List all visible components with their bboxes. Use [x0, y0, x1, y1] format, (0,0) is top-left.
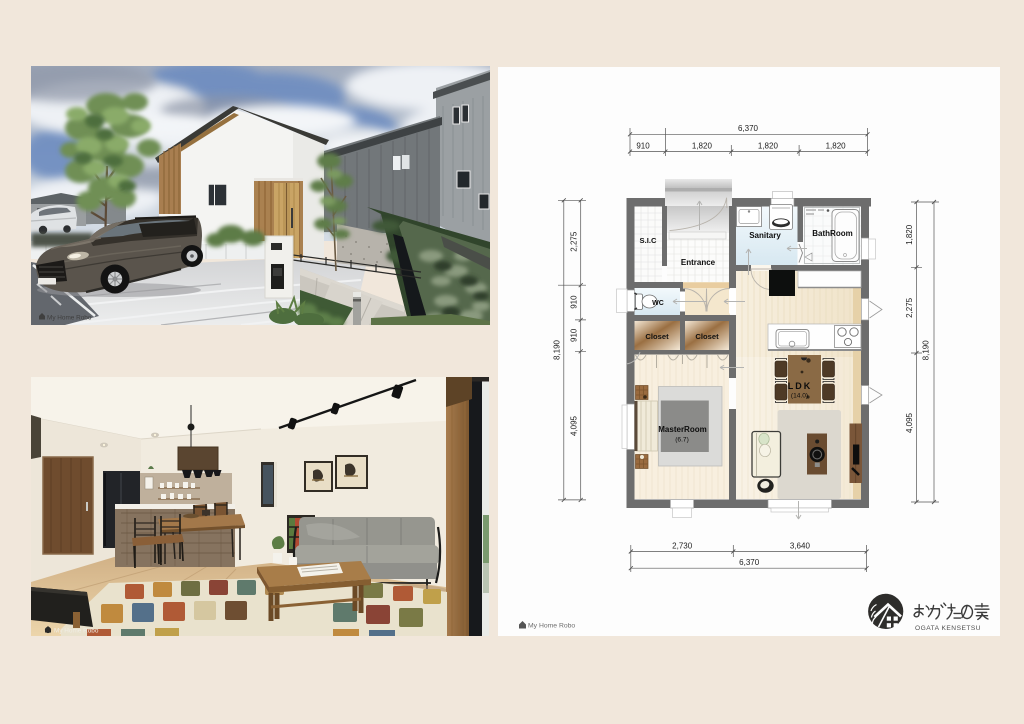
svg-text:1,820: 1,820 [692, 142, 713, 151]
svg-text:1,820: 1,820 [758, 142, 779, 151]
svg-text:6,370: 6,370 [739, 558, 760, 567]
svg-text:Entrance: Entrance [681, 258, 716, 267]
svg-text:OGATA KENSETSU: OGATA KENSETSU [915, 625, 981, 632]
svg-text:Sanitary: Sanitary [749, 231, 781, 240]
svg-text:1,820: 1,820 [826, 142, 847, 151]
svg-text:Closet: Closet [645, 332, 669, 341]
svg-text:(14.0): (14.0) [791, 393, 808, 400]
svg-text:1,820: 1,820 [905, 224, 914, 245]
svg-text:Closet: Closet [695, 332, 719, 341]
svg-text:8,190: 8,190 [553, 339, 562, 360]
svg-text:LDK: LDK [788, 381, 813, 391]
svg-text:4,095: 4,095 [570, 415, 579, 436]
svg-text:(6.7): (6.7) [675, 437, 689, 444]
svg-text:910: 910 [570, 295, 579, 309]
svg-text:4,095: 4,095 [905, 412, 914, 433]
svg-text:2,730: 2,730 [672, 541, 693, 550]
svg-text:My Home Robo: My Home Robo [47, 315, 92, 322]
svg-text:2,275: 2,275 [905, 297, 914, 318]
svg-text:MasterRoom: MasterRoom [658, 425, 706, 434]
svg-text:My Home Robo: My Home Robo [528, 623, 575, 630]
svg-text:3,640: 3,640 [790, 541, 811, 550]
svg-text:6,370: 6,370 [738, 124, 759, 133]
svg-text:My Home Robo: My Home Robo [54, 628, 99, 635]
svg-text:WC: WC [652, 300, 664, 307]
svg-text:BathRoom: BathRoom [812, 229, 852, 238]
svg-text:S.I.C: S.I.C [640, 236, 657, 245]
svg-text:8,190: 8,190 [922, 340, 931, 361]
svg-text:910: 910 [636, 142, 650, 151]
svg-text:2,275: 2,275 [570, 231, 579, 252]
svg-text:910: 910 [570, 328, 579, 342]
